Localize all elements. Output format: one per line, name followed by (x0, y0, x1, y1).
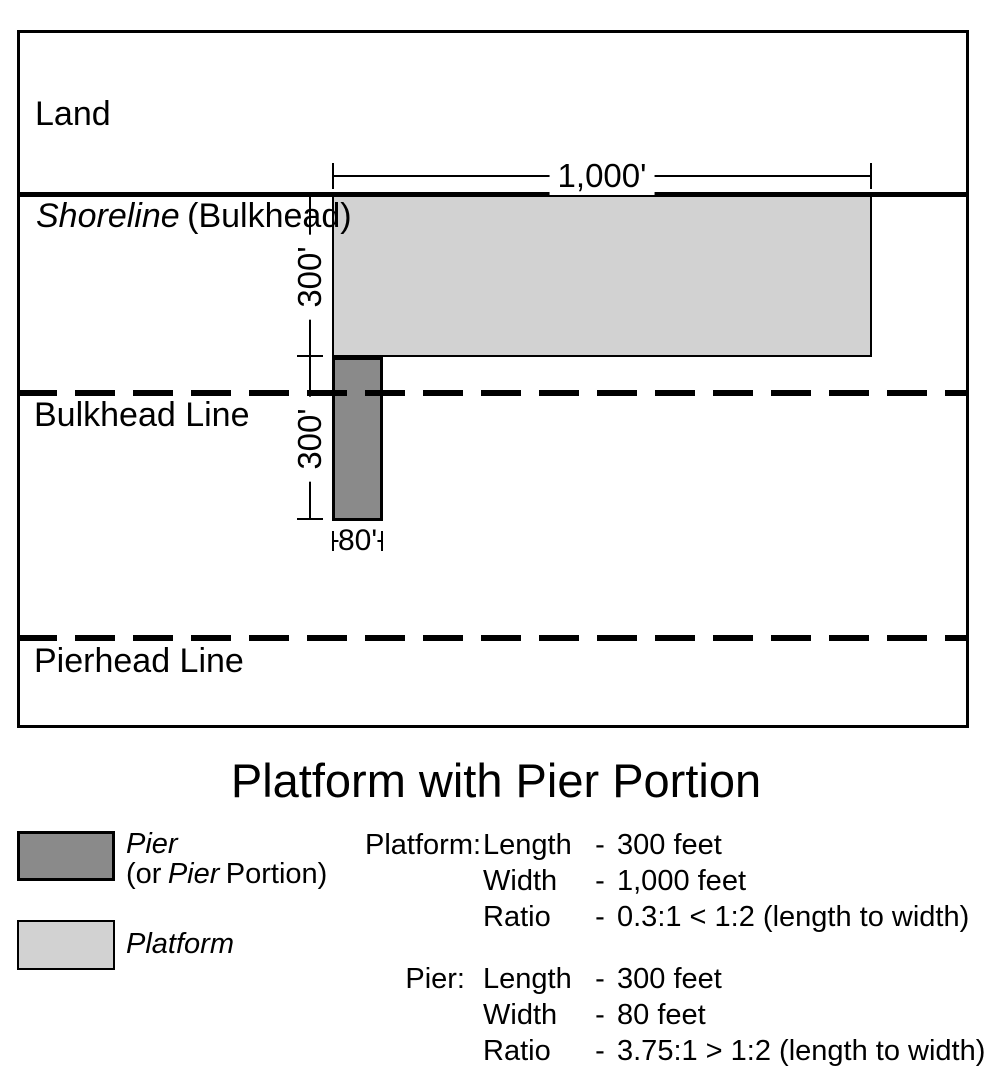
legend-pier-label: Pier (orPierPortion) (126, 829, 327, 889)
spec-dash: - (585, 997, 615, 1033)
shoreline-label-italic: Shoreline (36, 197, 180, 235)
platform-specs-table: Platform: Length - 300 feet Width - 1,00… (365, 827, 969, 935)
dimension-tick-right (870, 163, 872, 189)
spec-heading-empty (365, 899, 465, 935)
legend-pier-swatch (17, 831, 115, 881)
spec-value: 80 feet (615, 997, 985, 1033)
dimension-tick-left (332, 163, 334, 189)
legend-pier-word: Pier (126, 828, 178, 860)
platform-specs-heading: Platform: (365, 827, 465, 863)
spec-dash: - (585, 1033, 615, 1069)
spec-dash: - (585, 827, 615, 863)
platform-pier-diagram-page: Land Shoreline(Bulkhead) Bulkhead Line P… (0, 0, 992, 1080)
pierhead-line (17, 635, 969, 641)
platform-width-dimension-label: 1,000' (550, 157, 655, 195)
spec-dash: - (585, 961, 615, 997)
platform-length-dimension-label: 300' (291, 234, 329, 319)
spec-value: 300 feet (615, 961, 985, 997)
pier-length-dimension-label: 300' (291, 396, 329, 481)
pierhead-line-label: Pierhead Line (34, 644, 244, 680)
legend-platform-swatch (17, 920, 115, 970)
pier-width-dimension-label: 80' (338, 524, 377, 558)
spec-dash: - (585, 899, 615, 935)
legend-pier-line2-prefix: (or (126, 858, 161, 890)
pier-shape (332, 357, 383, 521)
dimension-tick-left (332, 531, 334, 551)
platform-shape (332, 194, 872, 357)
bulkhead-line-label: Bulkhead Line (34, 398, 250, 434)
pier-width-dimension: 80' (332, 531, 383, 551)
platform-width-dimension: 1,000' (332, 163, 872, 189)
spec-key: Length (465, 827, 585, 863)
spec-value: 1,000 feet (615, 863, 969, 899)
dimension-tick-right (381, 531, 383, 551)
pier-specs-table: Pier: Length - 300 feet Width - 80 feet … (365, 961, 985, 1069)
shoreline-label-rest: (Bulkhead) (187, 197, 351, 235)
spec-heading-empty (365, 997, 465, 1033)
land-label: Land (35, 97, 111, 133)
spec-heading-empty (365, 863, 465, 899)
spec-value: 300 feet (615, 827, 969, 863)
diagram-title: Platform with Pier Portion (0, 753, 992, 808)
spec-key: Ratio (465, 1033, 585, 1069)
spec-value: 0.3:1 < 1:2 (length to width) (615, 899, 969, 935)
spec-key: Width (465, 997, 585, 1033)
spec-key: Width (465, 863, 585, 899)
spec-key: Length (465, 961, 585, 997)
pier-length-dimension: 300' (297, 357, 323, 520)
pier-specs-heading: Pier: (365, 961, 465, 997)
legend-pier-label-line2: (orPierPortion) (126, 859, 327, 889)
legend-pier-line2-suffix: Portion) (226, 858, 328, 890)
legend-pier-label-line1: Pier (126, 829, 327, 859)
legend-platform-label: Platform (126, 929, 234, 960)
spec-key: Ratio (465, 899, 585, 935)
legend-pier-line2-italic: Pier (168, 858, 220, 890)
shoreline-label: Shoreline(Bulkhead) (36, 199, 352, 235)
dimension-end-tick (297, 518, 323, 520)
spec-value: 3.75:1 > 1:2 (length to width) (615, 1033, 985, 1069)
spec-dash: - (585, 863, 615, 899)
spec-heading-empty (365, 1033, 465, 1069)
diagram-frame (17, 30, 969, 728)
